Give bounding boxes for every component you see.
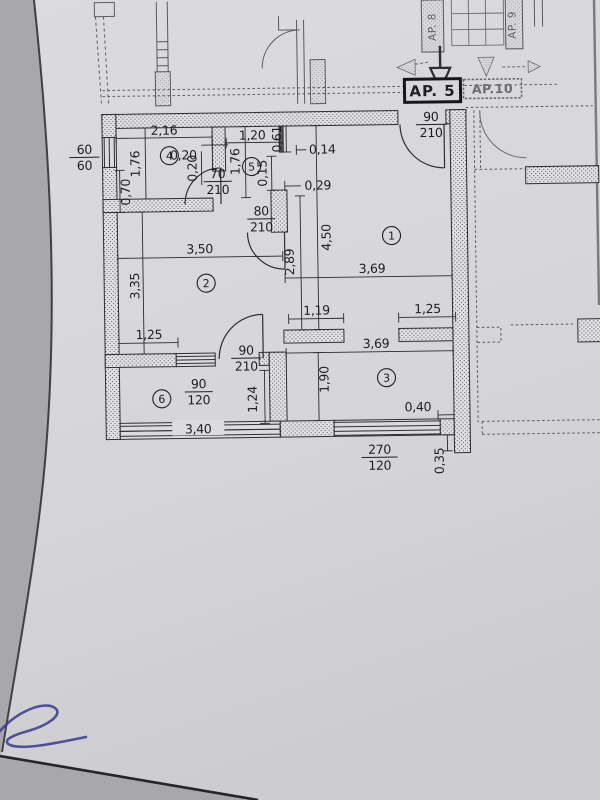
dim-1-90: 1,90 [316,366,331,393]
window-60-num: 60 [77,142,93,157]
corridor-door-ap9: AP. 9 [505,0,523,49]
apartment-label-ap10: AP.10 [463,79,521,99]
dim-0-70: 0,70 [118,179,133,206]
dim-2-89: 2,89 [282,248,297,275]
dim-0-35: 0,35 [431,448,446,475]
wall-room6-right [269,352,287,421]
ap5-label: AP. 5 [409,82,455,101]
room-1-number: 1 [388,230,395,243]
window-270-num: 270 [368,442,392,457]
dim-0-40: 0,40 [404,399,431,414]
window-90-den: 120 [187,392,211,407]
dim-1-24: 1,24 [245,386,260,413]
bottom-pier-right [440,419,454,435]
entry-door-num: 90 [423,109,439,124]
door-80-num: 80 [253,203,269,218]
dim-3-40: 3,40 [185,421,212,436]
dim-3-50: 3,50 [186,241,213,256]
neighbor-wall-piece-2 [578,319,600,342]
dim-0-20b: 0,20 [184,155,199,182]
door-80-den: 210 [250,219,274,234]
room-5-number: 5 [248,160,255,173]
dim-3-69a: 3,69 [359,261,386,276]
dim-1-20: 1,20 [239,127,266,142]
dim-3-35: 3,35 [127,273,142,300]
room-2-number: 2 [203,277,210,290]
dim-1-25r: 1,25 [414,301,441,316]
window-90-num: 90 [191,376,207,391]
door-70-num: 70 [210,166,226,181]
apartment-label-ap5: AP. 5 [404,79,460,103]
dim-0-14: 0,14 [309,141,336,156]
dim-3-69b: 3,69 [363,336,390,351]
window-270x120-bottom-right [334,419,440,436]
dim-1-76l: 1,76 [127,150,142,177]
dim-4-50: 4,50 [318,224,333,251]
door-90-den: 210 [235,358,259,373]
neighbor-wall-piece [526,166,599,184]
window-60-den: 60 [77,158,93,173]
dim-2-16: 2,16 [151,123,178,138]
dim-0-61: 0,61 [269,126,284,153]
ap9-vertical-label: AP. 9 [506,11,518,39]
bottom-pier-mid [280,420,334,437]
room-3-number: 3 [383,372,390,385]
wall-room2-room6-post [259,352,269,365]
room-4-number: 4 [166,150,173,163]
floor-plan-drawing: AP. 8 AP. 9 AP. 5 AP.10 [0,0,600,800]
window-270-den: 120 [368,458,392,473]
dim-1-76r: 1,76 [227,148,242,175]
dim-1-19: 1,19 [303,302,330,317]
corridor-door-ap8: AP. 8 [421,0,444,52]
door-90-num: 90 [238,343,254,358]
door-70-den: 210 [206,182,230,197]
wall-room4-right [212,127,226,171]
photo-of-floor-plan: AP. 8 AP. 9 AP. 5 AP.10 [0,0,600,800]
room1-room3-pier-left [284,329,344,343]
ap10-label: AP.10 [472,81,513,97]
entry-door-den: 210 [420,125,444,140]
dim-0-29: 0,29 [304,177,331,192]
room-6-number: 6 [158,393,165,406]
wall-room2-room6-left [105,354,176,368]
left-wall-a [102,114,116,137]
window-90x120-interior [176,353,215,367]
window-60x60-left-wall [102,137,116,167]
dim-1-25l: 1,25 [135,327,162,342]
ap8-vertical-label: AP. 8 [426,13,438,41]
hall-right-wall [271,190,288,232]
room1-room3-pier-right [399,328,453,342]
